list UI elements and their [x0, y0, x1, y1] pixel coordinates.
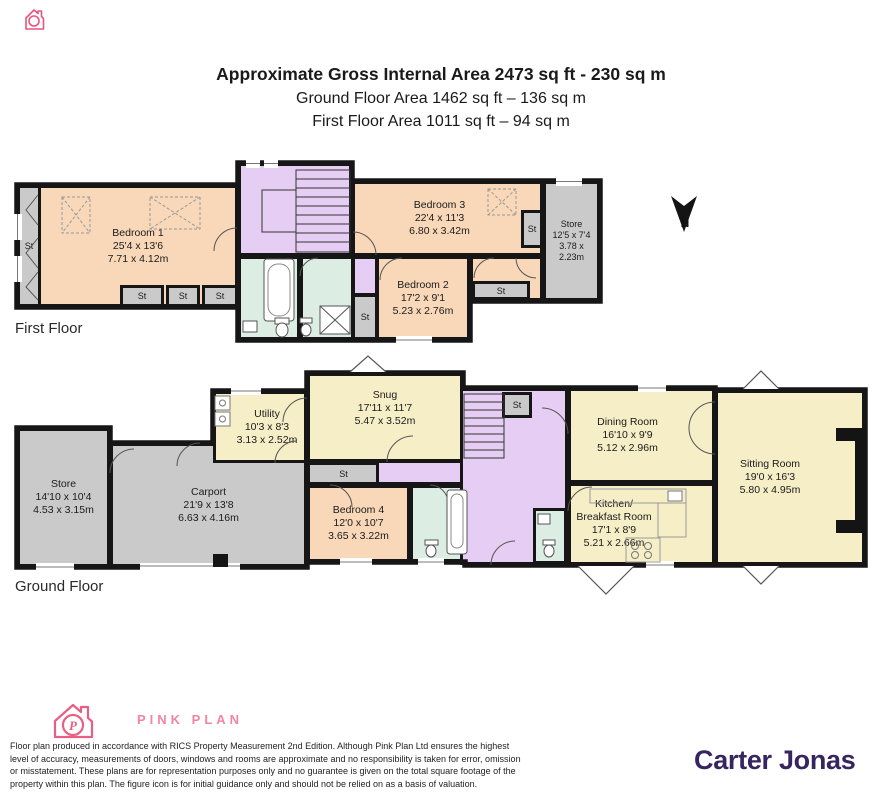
- room-label: Kitchen/ Breakfast Room 17'1 x 8'9 5.21 …: [576, 498, 706, 550]
- room-dining: Dining Room 16'10 x 9'9 5.12 x 2.96m: [568, 388, 715, 483]
- room-size-imperial: 17'1 x 8'9: [576, 524, 651, 537]
- room-name: Bedroom 1: [108, 227, 169, 240]
- room-label: Sitting Room 19'0 x 16'3 5.80 x 4.95m: [740, 458, 841, 497]
- room-label: Bedroom 1 25'4 x 13'6 7.71 x 4.12m: [108, 227, 169, 266]
- page-title: Approximate Gross Internal Area 2473 sq …: [0, 64, 882, 85]
- room-name-line1: Kitchen/: [576, 498, 651, 511]
- room-label: Bedroom 4 12'0 x 10'7 3.65 x 3.22m: [328, 504, 389, 543]
- room-name: Dining Room: [597, 416, 658, 429]
- room-size-imperial: 17'2 x 9'1: [393, 292, 454, 305]
- room-label: Dining Room 16'10 x 9'9 5.12 x 2.96m: [597, 416, 686, 455]
- room-ff-closet-e: St: [521, 210, 543, 248]
- room-size-imperial: 12'5 x 7'4: [546, 230, 597, 241]
- closet-label: St: [25, 241, 34, 251]
- agent-logo: Carter Jonas: [694, 745, 855, 776]
- room-bedroom-4: Bedroom 4 12'0 x 10'7 3.65 x 3.22m: [307, 485, 410, 562]
- room-kitchen: Kitchen/ Breakfast Room 17'1 x 8'9 5.21 …: [568, 483, 715, 565]
- room-size-imperial: 19'0 x 16'3: [740, 471, 801, 484]
- ground-floor-area-line: Ground Floor Area 1462 sq ft – 136 sq m: [0, 90, 882, 108]
- room-size-metric: 3.78 x 2.23m: [546, 241, 597, 263]
- room-gf-closet: St: [307, 462, 380, 485]
- room-name: Sitting Room: [740, 458, 801, 471]
- room-name: Store: [546, 219, 597, 230]
- room-size-metric: 5.21 x 2.66m: [576, 537, 651, 550]
- closet-label: St: [497, 286, 506, 296]
- room-size-imperial: 14'10 x 10'4: [33, 491, 94, 504]
- room-name: Snug: [355, 389, 416, 402]
- room-size-metric: 6.80 x 3.42m: [409, 225, 470, 238]
- room-sitting: Sitting Room 19'0 x 16'3 5.80 x 4.95m: [715, 390, 865, 565]
- room-gf-corridor: [376, 460, 470, 485]
- first-floor-label: First Floor: [15, 320, 83, 337]
- room-size-metric: 3.65 x 3.22m: [328, 530, 389, 543]
- closet-label: St: [138, 291, 147, 301]
- room-name: Bedroom 2: [393, 279, 454, 292]
- north-label: N: [671, 216, 699, 230]
- room-size-metric: 5.12 x 2.96m: [597, 442, 658, 455]
- room-ff-bathroom: [238, 256, 300, 340]
- closet-label: St: [361, 312, 370, 322]
- room-gf-closet-hall: St: [502, 392, 532, 418]
- room-ff-closet-c: St: [202, 285, 238, 307]
- room-label: Bedroom 2 17'2 x 9'1 5.23 x 2.76m: [393, 279, 454, 318]
- room-name: Store: [33, 478, 94, 491]
- ground-floor-label: Ground Floor: [15, 578, 103, 595]
- room-ff-store: Store 12'5 x 7'4 3.78 x 2.23m: [543, 181, 600, 301]
- room-size-imperial: 25'4 x 13'6: [108, 240, 169, 253]
- room-label: Bedroom 3 22'4 x 11'3 6.80 x 3.42m: [409, 199, 486, 238]
- room-label: Snug 17'11 x 11'7 5.47 x 3.52m: [355, 389, 416, 446]
- room-ff-corridor: [352, 256, 378, 296]
- room-label: Store 14'10 x 10'4 4.53 x 3.15m: [33, 478, 94, 517]
- closet-label: St: [216, 291, 225, 301]
- room-name: Utility: [237, 408, 298, 421]
- room-ff-landing: [238, 163, 352, 256]
- room-ff-closet-a: St: [120, 285, 164, 307]
- room-size-imperial: 17'11 x 11'7: [355, 402, 416, 415]
- room-name: Bedroom 4: [328, 504, 389, 517]
- room-size-imperial: 16'10 x 9'9: [597, 429, 658, 442]
- room-label: Store 12'5 x 7'4 3.78 x 2.23m: [546, 219, 597, 263]
- disclaimer-text: Floor plan produced in accordance with R…: [10, 740, 524, 790]
- room-size-metric: 5.47 x 3.52m: [355, 415, 416, 428]
- room-size-imperial: 10'3 x 8'3: [237, 421, 298, 434]
- room-size-imperial: 12'0 x 10'7: [328, 517, 389, 530]
- room-label: Carport 21'9 x 13'8 6.63 x 4.16m: [178, 486, 239, 525]
- room-ff-closet-d: St: [472, 281, 530, 300]
- room-gf-wc: [533, 508, 567, 564]
- room-bedroom-2: Bedroom 2 17'2 x 9'1 5.23 x 2.76m: [376, 256, 470, 340]
- closet-label: St: [513, 400, 522, 410]
- room-name: Bedroom 3: [409, 199, 470, 212]
- room-size-metric: 7.71 x 4.12m: [108, 253, 169, 266]
- room-snug: Snug 17'11 x 11'7 5.47 x 3.52m: [307, 373, 463, 462]
- room-utility: Utility 10'3 x 8'3 3.13 x 2.52m: [213, 391, 307, 463]
- brand-name: PINK PLAN: [137, 712, 243, 727]
- room-size-metric: 6.63 x 4.16m: [178, 512, 239, 525]
- logo-letter: P: [69, 718, 78, 733]
- room-label: Utility 10'3 x 8'3 3.13 x 2.52m: [223, 408, 298, 447]
- room-size-metric: 3.13 x 2.52m: [237, 434, 298, 447]
- room-ff-closet-mid: St: [352, 294, 378, 340]
- room-size-imperial: 21'9 x 13'8: [178, 499, 239, 512]
- room-gf-store: Store 14'10 x 10'4 4.53 x 3.15m: [17, 428, 110, 567]
- floor-plan-page: Approximate Gross Internal Area 2473 sq …: [0, 0, 882, 800]
- room-bedroom-3: Bedroom 3 22'4 x 11'3 6.80 x 3.42m: [352, 181, 543, 256]
- room-name-line2: Breakfast Room: [576, 511, 651, 524]
- room-size-metric: 4.53 x 3.15m: [33, 504, 94, 517]
- room-size-metric: 5.23 x 2.76m: [393, 305, 454, 318]
- closet-label: St: [339, 469, 348, 479]
- room-name: Carport: [178, 486, 239, 499]
- room-ff-closet-b: St: [166, 285, 200, 307]
- closet-label: St: [528, 224, 537, 234]
- room-size-metric: 5.80 x 4.95m: [740, 484, 801, 497]
- room-size-imperial: 22'4 x 11'3: [409, 212, 470, 225]
- pink-plan-mini-icon: [22, 6, 82, 46]
- first-floor-area-line: First Floor Area 1011 sq ft – 94 sq m: [0, 113, 882, 131]
- room-ff-shower-room: [300, 256, 354, 340]
- closet-label: St: [179, 291, 188, 301]
